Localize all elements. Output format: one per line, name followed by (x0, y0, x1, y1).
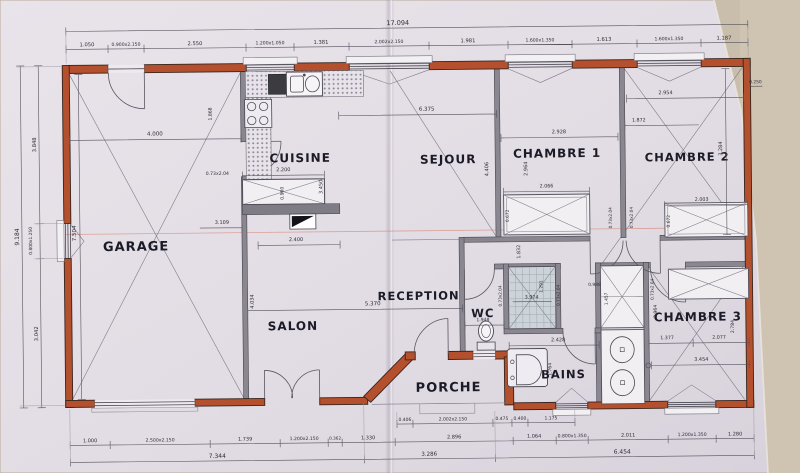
wall-top (66, 65, 108, 73)
svg-text:3.284: 3.284 (718, 141, 724, 155)
svg-text:0.406: 0.406 (398, 417, 411, 423)
dim-hall: 1.832 (516, 245, 522, 259)
svg-text:0.73x2.04: 0.73x2.04 (498, 285, 503, 307)
svg-text:0.73x2.04: 0.73x2.04 (649, 278, 654, 300)
svg-text:2.200: 2.200 (276, 167, 290, 173)
svg-text:1.600x1.350: 1.600x1.350 (525, 37, 554, 43)
wall-bottom-left (195, 398, 265, 406)
svg-text:2.954: 2.954 (658, 90, 672, 96)
svg-text:2.428: 2.428 (551, 337, 565, 343)
vanity-sinks (601, 329, 651, 404)
svg-text:3.974: 3.974 (525, 295, 539, 301)
svg-text:5.370: 5.370 (365, 301, 381, 307)
wall-bains-north-right (595, 328, 601, 333)
paper-fold (385, 0, 394, 473)
svg-text:7.504: 7.504 (72, 225, 78, 241)
svg-text:3.109: 3.109 (215, 220, 229, 226)
svg-text:1.175: 1.175 (544, 415, 557, 421)
svg-text:7.344: 7.344 (209, 453, 226, 460)
wall-top (294, 63, 349, 72)
svg-text:1.981: 1.981 (461, 38, 476, 44)
svg-text:0.73x2.04: 0.73x2.04 (608, 207, 613, 229)
svg-text:0.475: 0.475 (495, 416, 508, 422)
wardrobe-chambre2 (665, 202, 748, 237)
wardrobe-chambre3 (668, 268, 748, 299)
wall-top (144, 64, 246, 73)
svg-text:1.739: 1.739 (238, 437, 252, 443)
svg-text:4.000: 4.000 (147, 131, 163, 137)
svg-text:4.406: 4.406 (484, 162, 490, 176)
wall-left (62, 65, 71, 223)
svg-text:17.094: 17.094 (386, 19, 409, 27)
wall-top (429, 61, 508, 70)
svg-text:1.200x2.150: 1.200x2.150 (290, 436, 319, 442)
wall-porch-cap (405, 352, 415, 360)
svg-text:0.960: 0.960 (279, 187, 285, 200)
wall-bottom-left (66, 400, 95, 407)
svg-text:1.764: 1.764 (547, 363, 553, 376)
svg-text:2.896: 2.896 (447, 434, 461, 440)
room-label-garage: GARAGE (103, 239, 170, 255)
room-label-chambre2: CHAMBRE 2 (645, 150, 730, 165)
svg-text:0.800x1.250: 0.800x1.250 (28, 227, 34, 255)
svg-text:1.832: 1.832 (516, 245, 522, 259)
svg-text:2.003: 2.003 (695, 197, 709, 203)
svg-text:1.868: 1.868 (208, 107, 214, 120)
room-label-chambre1: CHAMBRE 1 (513, 146, 601, 161)
svg-text:2.784: 2.784 (730, 320, 736, 333)
svg-text:2.964: 2.964 (523, 161, 529, 175)
svg-text:1.381: 1.381 (314, 40, 329, 46)
svg-text:6.375: 6.375 (419, 107, 435, 113)
wall-bottom-right (514, 402, 556, 409)
wardrobe-chambre1 (504, 194, 590, 235)
svg-text:3.848: 3.848 (32, 137, 38, 152)
svg-text:6.454: 6.454 (614, 449, 631, 456)
room-label-salon: SALON (268, 319, 319, 334)
svg-text:1.457: 1.457 (604, 292, 610, 305)
svg-text:1.330: 1.330 (361, 435, 375, 441)
svg-text:1.050: 1.050 (80, 42, 95, 48)
svg-text:0.800x1.350: 0.800x1.350 (558, 433, 587, 439)
room-label-reception: RECEPTION (378, 288, 460, 303)
wall-left (64, 258, 73, 407)
svg-text:0.900x2.150: 0.900x2.150 (111, 42, 140, 48)
svg-text:1.280: 1.280 (728, 431, 742, 437)
room-label-chambre3: CHAMBRE 3 (654, 309, 742, 324)
svg-text:4.034: 4.034 (250, 294, 256, 308)
room-label-cuisine: CUISINE (269, 151, 331, 166)
wall-bottom-left (320, 397, 368, 405)
svg-text:0.73x2.04: 0.73x2.04 (206, 171, 229, 177)
svg-text:2.002x2.150: 2.002x2.150 (439, 416, 468, 422)
svg-text:1.291: 1.291 (538, 280, 544, 293)
svg-text:1.200x1.050: 1.200x1.050 (255, 40, 284, 46)
svg-text:3.450: 3.450 (318, 180, 324, 194)
svg-text:0.400: 0.400 (513, 416, 526, 422)
room-label-sejour: SEJOUR (420, 152, 477, 167)
svg-text:3.454: 3.454 (694, 357, 708, 363)
wall-top (572, 60, 637, 69)
svg-text:3.042: 3.042 (34, 326, 40, 341)
svg-text:1.613: 1.613 (596, 37, 611, 43)
svg-text:2.077: 2.077 (712, 335, 726, 341)
svg-text:1.064: 1.064 (527, 434, 541, 440)
photo-of-floor-plan: { "plan_title": "Plan de maison (rez-de-… (0, 0, 800, 473)
svg-text:1.948: 1.948 (476, 317, 489, 323)
svg-text:1.600x1.350: 1.600x1.350 (654, 36, 683, 42)
wall-hall-south-right (685, 261, 745, 267)
svg-text:1.377: 1.377 (660, 335, 674, 341)
svg-text:2.928: 2.928 (552, 129, 566, 135)
room-label-porche: PORCHE (416, 380, 482, 396)
svg-text:0.672: 0.672 (666, 215, 672, 228)
svg-text:0.73x2.04: 0.73x2.04 (629, 207, 634, 229)
svg-text:2.550: 2.550 (188, 41, 203, 47)
stove (245, 99, 272, 127)
oven-icon (268, 74, 286, 94)
svg-text:1.000: 1.000 (83, 438, 97, 444)
svg-text:1.187: 1.187 (716, 36, 731, 42)
svg-text:0.250: 0.250 (749, 79, 762, 85)
svg-text:1.200x1.350: 1.200x1.350 (678, 432, 707, 438)
svg-text:2.964: 2.964 (653, 305, 659, 318)
svg-text:0.988: 0.988 (588, 282, 601, 288)
svg-text:2.011: 2.011 (621, 433, 635, 439)
wc-window (473, 351, 495, 359)
svg-text:3.286: 3.286 (421, 452, 437, 458)
wall-entry (448, 351, 473, 359)
svg-text:9.184: 9.184 (14, 228, 21, 245)
floorplan-svg: GARAGE CUISINE SEJOUR CHAMBRE 1 CHAMBRE … (0, 0, 800, 473)
svg-text:0.73x2.04: 0.73x2.04 (556, 284, 561, 306)
svg-text:2.500x2.150: 2.500x2.150 (146, 437, 175, 443)
svg-text:0.362: 0.362 (329, 436, 341, 441)
svg-text:2.400: 2.400 (289, 237, 303, 243)
kitchen-sink (286, 72, 322, 96)
svg-text:2.002x2.150: 2.002x2.150 (374, 39, 403, 45)
svg-text:2.066: 2.066 (540, 183, 554, 189)
svg-text:1.872: 1.872 (632, 117, 646, 123)
svg-text:0.672: 0.672 (505, 209, 511, 222)
